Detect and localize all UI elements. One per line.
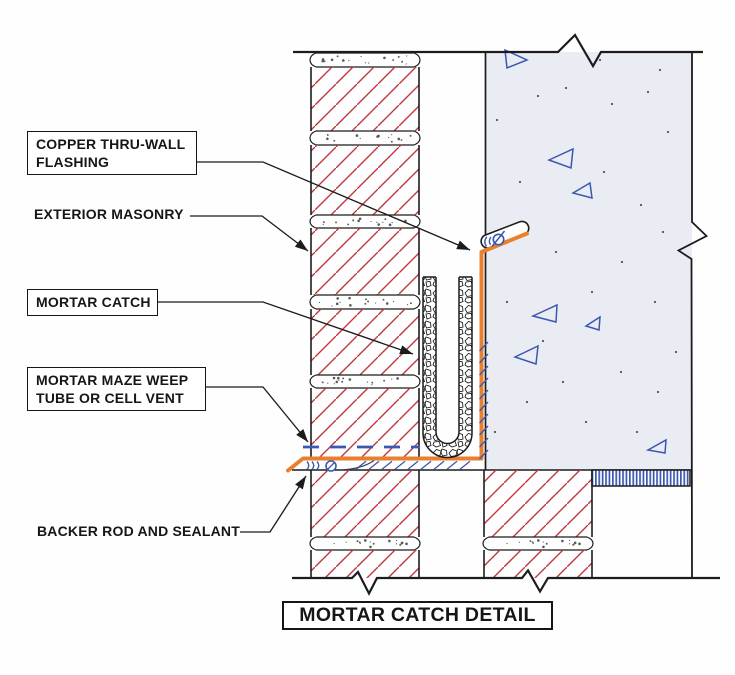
callout-mortar-maze-weep-tube: MORTAR MAZE WEEP TUBE OR CELL VENT: [27, 367, 206, 411]
detail-drawing-canvas: [0, 0, 735, 675]
mortar-catch-detail-sheet: COPPER THRU-WALL FLASHING EXTERIOR MASON…: [0, 0, 735, 675]
mortar-catch-channel: [423, 277, 472, 458]
interior-masonry-wythe: [483, 470, 593, 578]
striped-filler-band: [592, 470, 690, 486]
leader-exterior-masonry: [190, 216, 308, 251]
callout-mortar-catch: MORTAR CATCH: [27, 289, 158, 316]
drawing-title: MORTAR CATCH DETAIL: [282, 601, 553, 630]
concrete-backup-wall: [486, 52, 693, 470]
callout-backer-rod-and-sealant: BACKER ROD AND SEALANT: [37, 523, 240, 539]
leader-weep-tube: [206, 387, 308, 442]
callout-exterior-masonry: EXTERIOR MASONRY: [34, 206, 184, 222]
leader-backer-rod: [240, 476, 306, 532]
exterior-masonry-wythe: [310, 53, 420, 578]
callout-copper-thru-wall-flashing: COPPER THRU-WALL FLASHING: [27, 131, 197, 175]
